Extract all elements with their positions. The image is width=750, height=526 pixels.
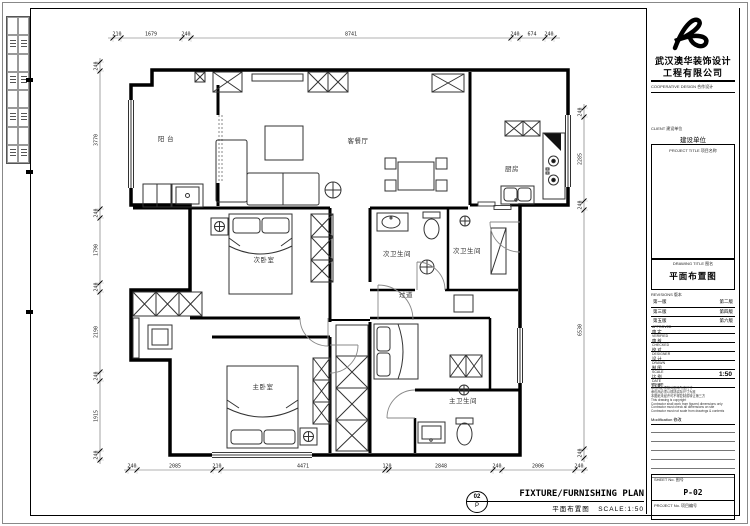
master-bedroom-furniture	[227, 358, 330, 448]
divider	[651, 80, 735, 82]
dimension-value: 240	[510, 32, 519, 38]
drawing-title-box: DRAWING TITLE 图名 平面布置图	[651, 258, 735, 290]
dimension-value: 240	[94, 450, 100, 459]
sheet-caption: SHEET No. 图号	[654, 477, 732, 483]
hall-closet	[336, 325, 368, 451]
dimension-value: 240	[181, 32, 190, 38]
title-underline	[487, 501, 644, 502]
sofa-chaise	[216, 140, 247, 202]
frame-ticks	[26, 78, 33, 314]
dimension-value: 240	[94, 282, 100, 291]
windows	[127, 100, 572, 459]
scale-value: 1:50	[719, 371, 732, 378]
dimension-value: 240	[94, 371, 100, 380]
dining-table	[398, 162, 434, 190]
client-caption: CLIENT 建设单位	[651, 126, 735, 132]
dimension-value: 674	[527, 32, 536, 38]
dimension-chain-right: 24022852406530240	[578, 104, 589, 462]
top-wall-cabinets	[195, 72, 464, 92]
modification-row	[651, 433, 735, 442]
revisions-table: 第一版第二版 第三版第四版 第五版第六版	[651, 298, 735, 327]
company-logo	[651, 14, 735, 59]
dimension-value: 240	[127, 464, 136, 470]
dimension-value: 210	[212, 464, 221, 470]
revision-cell: 第五版	[653, 318, 667, 324]
dimension-value: 3770	[94, 134, 100, 146]
room-label: 主卫生间	[449, 396, 477, 405]
modification-table	[651, 424, 735, 478]
project-title-box: PROJECT TITLE 项目名称	[651, 144, 735, 260]
bedroom2-furniture	[211, 214, 333, 294]
note-line: Contractor must not scale from drawings …	[651, 410, 735, 414]
bedroom3-furniture	[374, 324, 482, 379]
dimension-value: 2285	[578, 153, 584, 165]
revision-cell: 第三版	[653, 309, 667, 315]
dimension-value: 4471	[297, 464, 309, 470]
room-label: 厨房	[505, 164, 519, 173]
room-label: 客餐厅	[348, 136, 369, 145]
sheet-number-box: SHEET No. 图号 P-02 PROJECT No. 项目编号	[651, 474, 735, 520]
room-label: 次卫生间	[453, 246, 481, 255]
copyright-notes: 版权所有承包商必须核对图中所注尺寸承包商必须以现场实际尺寸为准本图纸未经许可不得…	[651, 383, 735, 416]
modification-row	[651, 460, 735, 469]
dimension-value: 8741	[345, 32, 357, 38]
company-name-line2: 工程有限公司	[651, 66, 735, 79]
master-bath-fixtures	[418, 385, 473, 445]
dimension-value: 2848	[435, 464, 447, 470]
dimension-lines: 2101679240874124067424024020852104471120…	[94, 32, 589, 475]
toilet	[457, 423, 472, 445]
plan-scale-label: SCALE:1:50	[598, 506, 644, 513]
balcony-curtain	[219, 115, 222, 183]
hall-table	[454, 295, 473, 312]
living-furniture	[216, 126, 447, 205]
dimension-chain-left: 2403770240179024021902401915240	[94, 58, 105, 464]
dimension-value: 240	[578, 448, 584, 457]
room-labels: 阳 台客餐厅厨房次卧室次卫生间次卫生间过道主卧室主卫生间	[158, 134, 519, 405]
client-value: 建设单位	[651, 134, 735, 144]
dimension-chain-bottom: 2402085210447112028482402006240	[124, 464, 588, 475]
coffee-table	[265, 126, 303, 160]
toilet	[424, 219, 439, 239]
roles-table: APPROVED审 定 VERIFIED审 核 CHECKED校 对 DESIG…	[651, 325, 735, 388]
plan-title-zh: 平面布置图 SCALE:1:50	[448, 503, 644, 513]
title-block: 武汉澳华装饰设计 工程有限公司 COOPERATIVE DESIGN 合作设计 …	[646, 8, 739, 514]
revision-cell: 第二版	[720, 299, 734, 305]
dimension-value: 240	[94, 61, 100, 70]
walls	[131, 70, 568, 455]
dimension-value: 1679	[145, 32, 157, 38]
sheet-number: P-02	[652, 488, 734, 497]
room-label: 次卧室	[254, 255, 275, 264]
divider	[651, 92, 735, 93]
room-label: 主卧室	[253, 382, 274, 391]
revision-cell: 第一版	[653, 299, 667, 305]
revision-cell: 第四版	[720, 309, 734, 315]
modification-row	[651, 442, 735, 451]
kitchen-furniture	[501, 121, 565, 204]
dimension-value: 2006	[532, 464, 544, 470]
study-furniture	[133, 292, 202, 358]
cooperative-caption: COOPERATIVE DESIGN 合作设计	[651, 84, 735, 90]
plan-title-en: FIXTURE/FURNISHING PLAN	[448, 489, 644, 499]
dimension-value: 120	[382, 464, 391, 470]
drawing-sheet: 2101679240874124067424024020852104471120…	[0, 0, 750, 526]
modification-row	[651, 451, 735, 460]
dimension-value: 240	[544, 32, 553, 38]
plan-title-zh-text: 平面布置图	[552, 506, 590, 513]
corridor-items	[420, 260, 473, 312]
dimension-value: 1790	[94, 244, 100, 256]
dimension-value: 2190	[94, 326, 100, 338]
dimension-value: 1915	[94, 410, 100, 422]
drawing-title-caption: DRAWING TITLE 图名	[652, 261, 734, 267]
revision-cell: 第六版	[720, 318, 734, 324]
dimension-value: 2085	[169, 464, 181, 470]
modification-row	[651, 424, 735, 433]
project-number-caption: PROJECT No. 项目编号	[654, 503, 732, 509]
dimension-value: 240	[94, 208, 100, 217]
dimension-value: 6530	[578, 324, 584, 336]
dimension-value: 240	[578, 200, 584, 209]
divider	[652, 500, 734, 501]
dimension-value: 240	[578, 107, 584, 116]
bath2-fixtures	[377, 212, 506, 274]
dimension-chain-top: 21016792408741240674240	[108, 32, 560, 43]
dimension-value: 240	[492, 464, 501, 470]
project-title-caption: PROJECT TITLE 项目名称	[652, 148, 734, 154]
dimension-value: 210	[112, 32, 121, 38]
room-label: 过道	[399, 290, 413, 299]
floor-plan: 2101679240874124067424024020852104471120…	[0, 0, 750, 526]
room-label: 阳 台	[158, 134, 174, 143]
drawing-title-value: 平面布置图	[652, 270, 734, 282]
dimension-value: 240	[574, 464, 583, 470]
room-label: 次卫生间	[383, 249, 411, 258]
